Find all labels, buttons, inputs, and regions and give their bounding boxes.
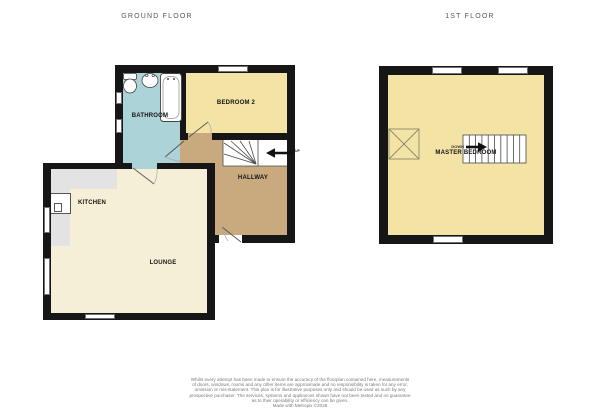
hallway-label: HALLWAY [213, 175, 293, 181]
disclaimer-text: Whilst every attempt has been made to en… [90, 377, 510, 408]
gf-window-lounge-left [44, 258, 50, 295]
ff-window-bottom [433, 236, 463, 243]
gf-window-bathroom-2 [116, 119, 122, 133]
gf-wall-top [115, 65, 295, 73]
bedroom2-door-opening [188, 133, 212, 140]
gf-wall-bedroom-bottom-a [180, 133, 188, 140]
up-label: UP [295, 149, 300, 153]
ff-window-top-2 [498, 67, 528, 74]
lounge-floor [51, 169, 207, 313]
disclaimer-credit: Made with Metropix ©2025 [90, 403, 510, 408]
first-floor-title: 1ST FLOOR [390, 13, 550, 20]
ff-wall-right [544, 66, 553, 244]
gf-window-lounge-bottom [85, 314, 115, 319]
floorplan-canvas: GROUND FLOOR 1ST FLOOR [0, 0, 600, 411]
down-label: DOWN [444, 144, 464, 149]
gf-window-kitchen [44, 207, 50, 233]
gf-window-bathroom-1 [116, 92, 122, 104]
bathroom-label: BATHROOM [110, 113, 190, 119]
ff-wall-bottom [379, 235, 553, 244]
master-bedroom-label: MASTER BEDROOM [416, 150, 516, 156]
gf-wall-bedroom-bottom-b [212, 133, 287, 140]
ff-wall-left [379, 66, 388, 244]
gf-wall-lounge-left [43, 163, 51, 320]
kitchen-label: KITCHEN [62, 200, 122, 206]
lounge-label: LOUNGE [133, 260, 193, 266]
gf-wall-right [287, 65, 295, 243]
gf-wall-lounge-top-a [43, 163, 132, 169]
ground-floor-title: GROUND FLOOR [77, 13, 237, 20]
ff-window-top-1 [432, 67, 462, 74]
gf-wall-hallway-bottom-a [215, 235, 219, 243]
gf-wall-hallway-bottom-b [242, 235, 287, 243]
kitchen-appliance-detail [54, 203, 62, 212]
bedroom2-label: BEDROOM 2 [196, 100, 276, 106]
gf-wall-lounge-bottom [43, 313, 215, 320]
gf-wall-lounge-right [207, 163, 215, 320]
gf-window-bedroom2-top [218, 66, 248, 72]
gf-wall-bathroom-divider [180, 73, 186, 140]
